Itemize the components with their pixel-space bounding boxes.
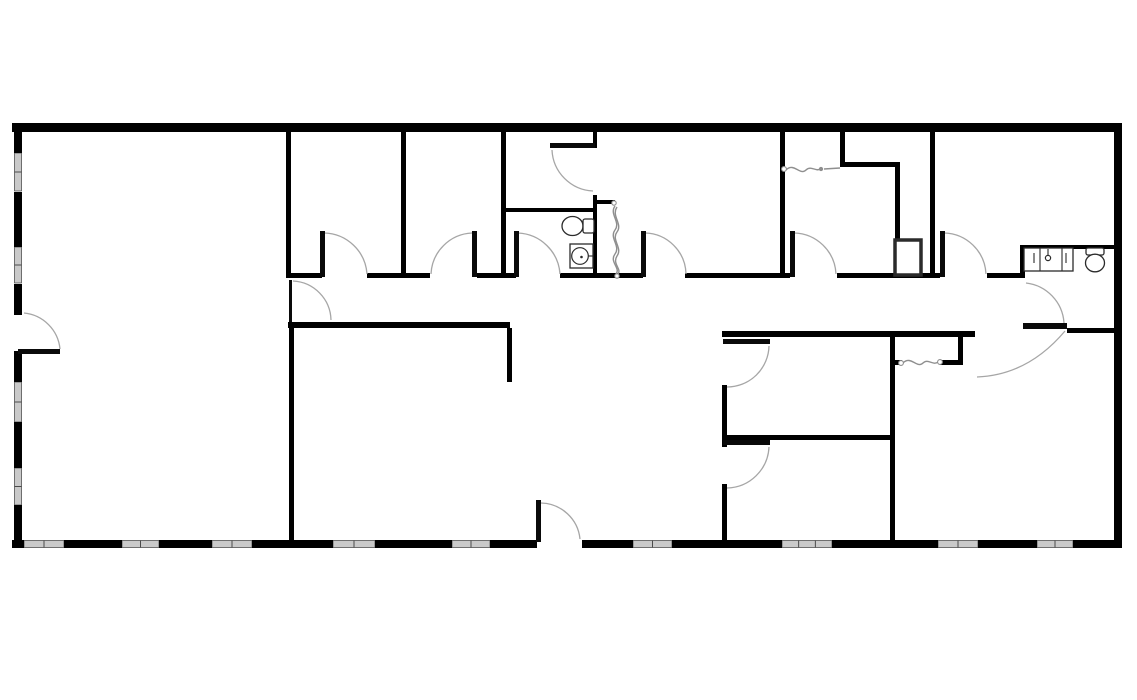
door-leaf-room-g <box>723 339 770 344</box>
window-left-4 <box>15 468 22 505</box>
door-arc-room-f <box>944 233 986 274</box>
accordion-door-closet-i-pivot <box>938 360 943 365</box>
window-bottom-4 <box>333 541 375 548</box>
door-arc-vestibule <box>552 150 593 191</box>
wall-room-d-e-divider <box>780 132 785 278</box>
wall-open-area-stub <box>507 328 512 382</box>
door-arc-east-end-swing <box>977 331 1065 377</box>
outer-wall-bottom-seg5 <box>375 540 452 548</box>
floor-plan-drawing <box>0 0 1137 700</box>
wall-corridor-top-seg6 <box>837 273 940 278</box>
sink-counter-alcove <box>1024 248 1073 271</box>
window-bottom-2 <box>122 541 159 548</box>
toilet-alcove <box>1086 248 1105 272</box>
column-box-rect <box>895 240 921 275</box>
window-bottom-6 <box>633 541 672 548</box>
window-bottom-7 <box>782 541 832 548</box>
outer-wall-bottom-seg7 <box>582 540 633 548</box>
wall-corridor-bottom-west <box>288 322 510 328</box>
door-arc-room-g <box>727 346 769 387</box>
toilet-bathroom-rect <box>583 219 594 233</box>
door-arc-entry <box>541 503 580 539</box>
wall-vestibule-bath-divider <box>501 208 596 212</box>
windows-layer <box>15 153 1074 548</box>
window-bottom-1 <box>24 541 64 548</box>
door-arc-bathroom <box>518 233 560 274</box>
column-box <box>895 240 921 275</box>
accordion-door-closet-e-fold <box>824 168 840 169</box>
wall-closet-i-east <box>958 331 963 365</box>
accordion-door-closet-e <box>782 167 840 172</box>
outer-wall-bottom-seg3 <box>159 540 212 548</box>
accordion-door-closet-i-pivot <box>899 361 904 366</box>
sink-counter-alcove-basin <box>1045 255 1050 260</box>
wall-east-end-south <box>1067 328 1114 333</box>
wall-room-c-bath-divider <box>501 132 506 278</box>
door-arc-room-e <box>794 233 836 274</box>
door-leaf-room-h <box>723 440 770 445</box>
outer-wall-bottom-seg6 <box>490 540 537 548</box>
accordion-door-closet-bath-pivot <box>615 274 619 278</box>
floor-plan-page <box>0 0 1137 700</box>
accordion-door-closet-e-fold <box>786 167 820 171</box>
wall-room-g-h-divider <box>722 435 892 440</box>
window-bottom-8 <box>938 541 978 548</box>
door-leaf-room-c <box>472 231 477 277</box>
door-leaf-corridor-west <box>289 280 292 322</box>
wall-closet-e-west <box>840 132 845 166</box>
window-left-3 <box>15 382 22 422</box>
wall-room-i-west <box>890 337 895 542</box>
accordion-door-closet-i-fold <box>903 360 938 364</box>
door-arc-alcove <box>1026 283 1064 323</box>
outer-wall-left-seg1 <box>14 123 22 153</box>
wall-corridor-top-seg3 <box>477 273 516 278</box>
wall-room-b-c-divider <box>401 132 406 278</box>
wall-corridor-top-seg4 <box>560 273 643 278</box>
wall-corridor-top-seg5 <box>685 273 790 278</box>
toilet-alcove-bowl <box>1086 254 1105 272</box>
wall-corridor-bottom-east <box>722 331 975 337</box>
wall-room-h-west <box>722 484 727 542</box>
door-leaf-vestibule <box>550 143 595 148</box>
sink-bathroom <box>570 244 593 268</box>
window-bottom-7-glass <box>782 541 832 548</box>
wall-closet-e-south <box>840 162 900 167</box>
outer-wall-left-seg3 <box>14 284 22 315</box>
wall-room-a-b-divider <box>286 132 291 278</box>
wall-corridor-top-seg2 <box>367 273 430 278</box>
door-leaf-entry <box>536 500 541 542</box>
door-leaf-room-d <box>641 231 646 277</box>
outer-wall-left-seg2 <box>14 192 22 247</box>
wall-corridor-top-seg7 <box>987 273 1022 278</box>
outer-wall-bottom-seg1 <box>12 540 24 548</box>
door-leaf-room-f <box>940 231 945 277</box>
wall-room-e-f-divider <box>930 132 935 278</box>
outer-wall-left-seg4 <box>14 351 22 382</box>
wall-bottom-left-divider <box>289 322 294 548</box>
wall-closet-i-stub-east <box>940 360 960 365</box>
door-leaf-room-e <box>790 231 795 277</box>
door-leaf-room-a-exterior <box>18 349 60 354</box>
outer-wall-bottom-seg2 <box>64 540 122 548</box>
accordion-door-closet-i <box>899 360 943 366</box>
wall-closet-e-east <box>895 162 900 242</box>
window-left-1 <box>15 153 22 191</box>
door-arc-room-c <box>431 233 472 274</box>
window-left-2 <box>15 247 22 283</box>
outer-wall-bottom-seg9 <box>832 540 938 548</box>
door-arc-corridor-west <box>293 281 331 320</box>
window-bottom-5 <box>452 541 490 548</box>
accordion-door-closet-bath-pivot <box>612 201 616 205</box>
door-leaf-east-end <box>1023 323 1067 329</box>
outer-wall-left-seg5 <box>14 422 22 468</box>
outer-wall-right <box>1114 123 1122 548</box>
interior-walls-layer <box>286 132 1114 548</box>
window-bottom-9 <box>1037 541 1073 548</box>
window-bottom-3 <box>212 541 252 548</box>
accordion-door-closet-e-pivot <box>819 167 822 170</box>
outer-wall-bottom-seg10 <box>978 540 1037 548</box>
wall-corridor-top-seg1 <box>291 273 322 278</box>
door-arc-room-b <box>324 233 367 274</box>
sink-bathroom-basin <box>572 248 589 265</box>
accordion-door-closet-e-pivot <box>782 167 787 172</box>
outer-wall-top <box>12 123 1122 132</box>
door-arc-room-a-exterior <box>24 313 60 349</box>
accordion-door-closet-bath-fold <box>615 207 619 274</box>
toilet-bathroom-bowl <box>562 217 583 236</box>
door-leaf-room-b <box>320 231 325 277</box>
door-leaves-layer <box>18 143 1067 542</box>
door-arc-room-d <box>645 233 686 274</box>
door-leaf-bathroom <box>514 231 519 277</box>
sink-bathroom-drain <box>580 256 583 259</box>
door-arc-room-h <box>727 447 769 488</box>
accordion-door-closet-bath <box>612 201 619 278</box>
toilet-bathroom <box>562 217 594 236</box>
outer-wall-bottom-seg11 <box>1073 540 1122 548</box>
